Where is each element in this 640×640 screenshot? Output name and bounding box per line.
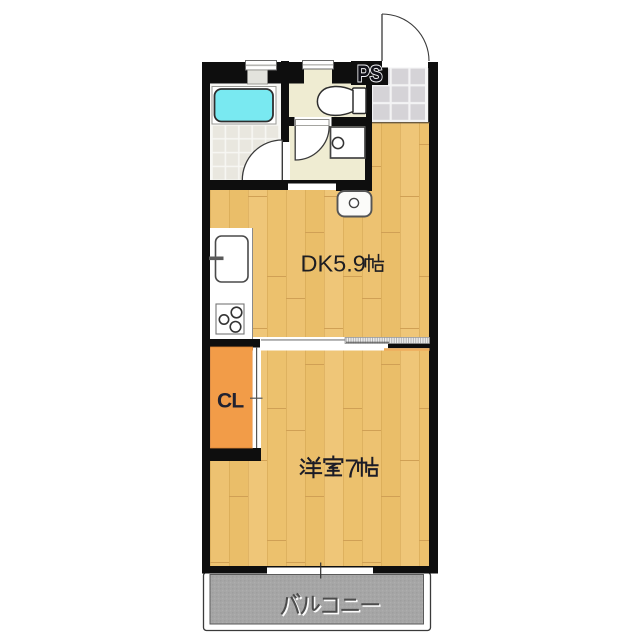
svg-text:PS: PS (357, 61, 383, 87)
svg-text:DK5.9: DK5.9 (301, 251, 366, 277)
svg-text:CL: CL (217, 390, 244, 413)
svg-text:7: 7 (345, 454, 359, 484)
